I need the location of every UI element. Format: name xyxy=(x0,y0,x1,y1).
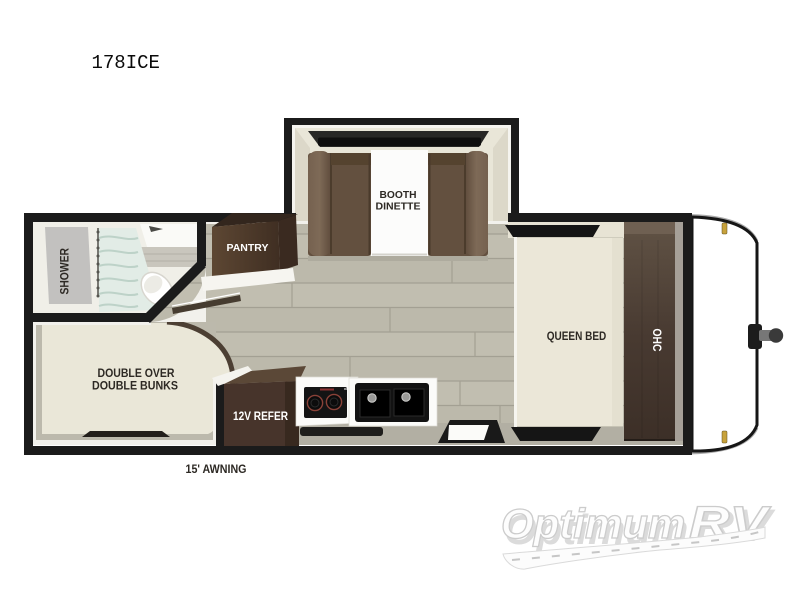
svg-text:DOUBLE OVER: DOUBLE OVER xyxy=(98,368,176,380)
svg-text:OHC: OHC xyxy=(650,329,662,352)
svg-text:DOUBLE BUNKS: DOUBLE BUNKS xyxy=(92,381,178,393)
svg-text:15' AWNING: 15' AWNING xyxy=(186,464,247,476)
svg-text:Optimum: Optimum xyxy=(501,500,685,547)
svg-text:DINETTE: DINETTE xyxy=(376,201,421,213)
svg-text:SHOWER: SHOWER xyxy=(59,247,71,294)
svg-text:QUEEN BED: QUEEN BED xyxy=(547,331,607,343)
svg-text:178ICE: 178ICE xyxy=(92,52,160,74)
svg-text:PANTRY: PANTRY xyxy=(227,242,269,254)
svg-text:BOOTH: BOOTH xyxy=(380,189,417,201)
svg-text:12V REFER: 12V REFER xyxy=(233,411,289,423)
